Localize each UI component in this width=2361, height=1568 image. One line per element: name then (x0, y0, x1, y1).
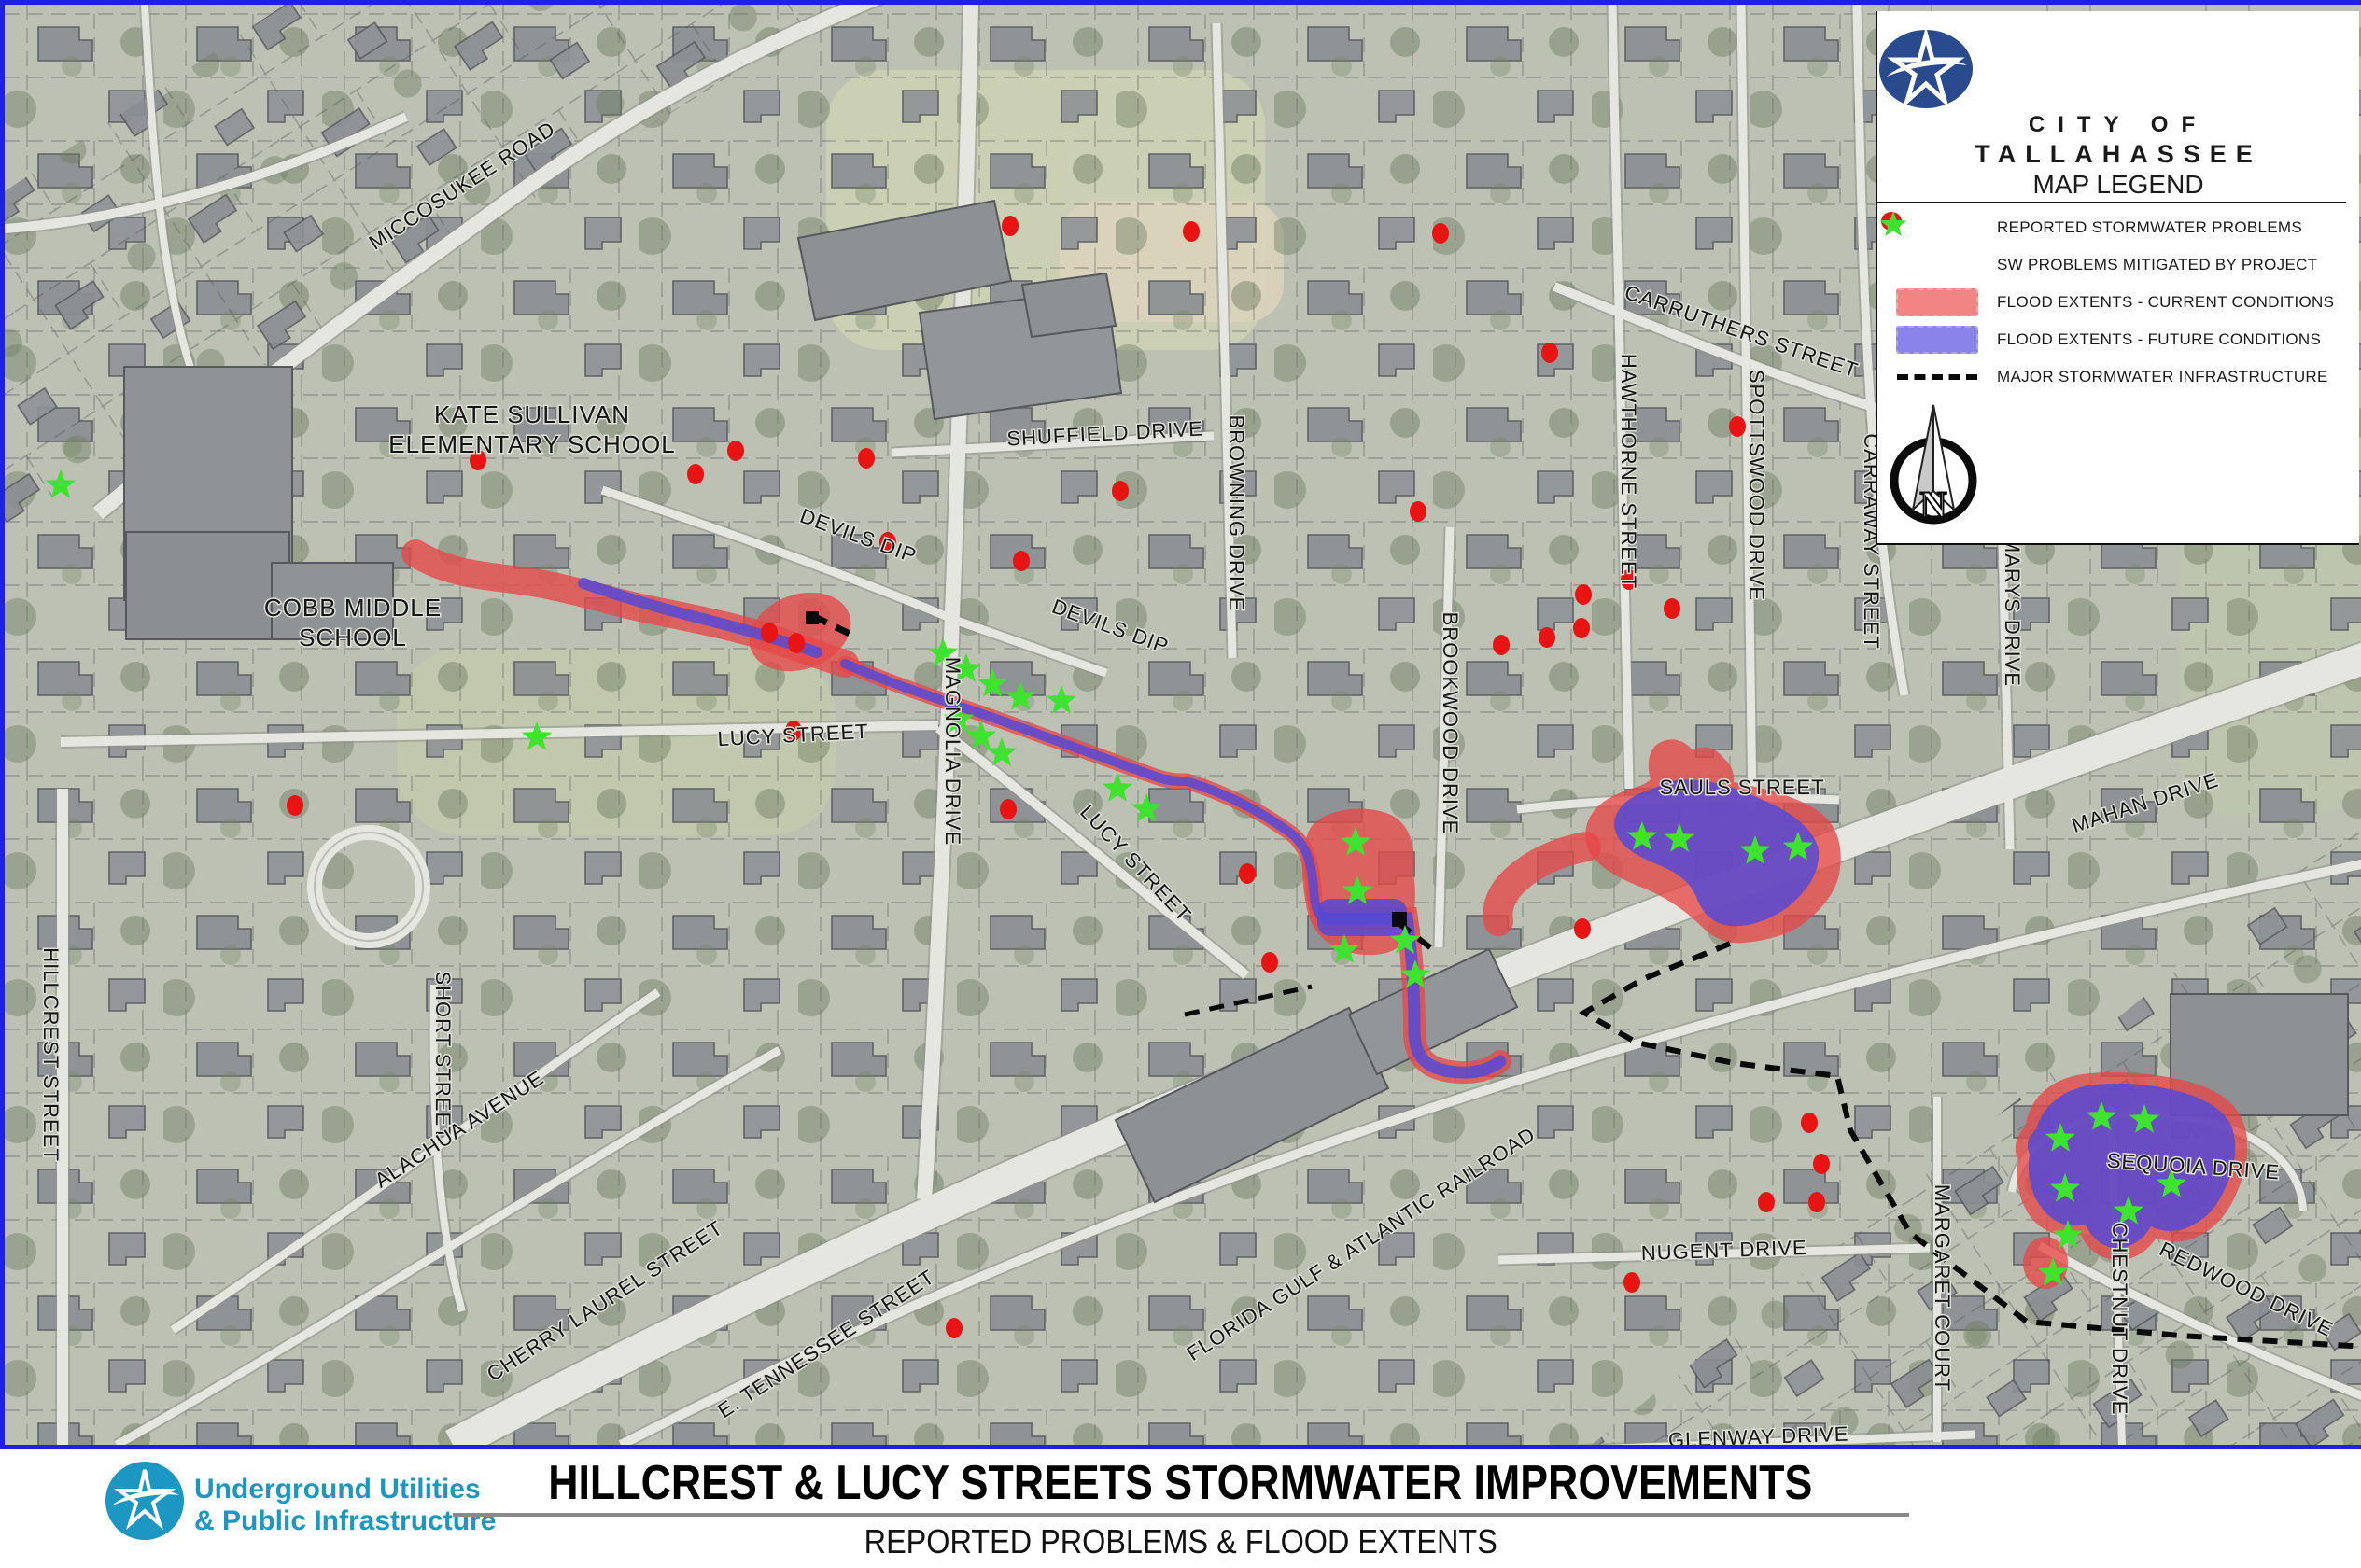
legend-item: SW PROBLEMS MITIGATED BY PROJECT (1877, 246, 2354, 284)
problem-dot[interactable] (1623, 1272, 1640, 1293)
title-underline (453, 1513, 1909, 1517)
legend-item: FLOOD EXTENTS - CURRENT CONDITIONS (1877, 284, 2354, 321)
legend-flood-current-swatch (1877, 288, 1997, 316)
legend-org-line1: CITY OF (1877, 112, 2359, 138)
sheet-title-block: HILLCREST & LUCY STREETS STORMWATER IMPR… (0, 1455, 2361, 1561)
problem-dot[interactable] (687, 464, 704, 484)
svg-text:N: N (1920, 483, 1947, 525)
place-label: KATE SULLIVAN (434, 400, 630, 428)
legend-title: MAP LEGEND (1877, 170, 2359, 200)
problem-dot[interactable] (788, 633, 805, 653)
legend-org-line2: TALLAHASSEE (1877, 140, 2359, 169)
legend-item-label: SW PROBLEMS MITIGATED BY PROJECT (1997, 256, 2317, 274)
problem-dot[interactable] (1410, 501, 1426, 522)
legend-item: FLOOD EXTENTS - FUTURE CONDITIONS (1877, 321, 2354, 358)
problem-dot[interactable] (1573, 618, 1590, 638)
map-title: HILLCREST & LUCY STREETS STORMWATER IMPR… (548, 1455, 1812, 1511)
street-label: SHORT STREET (431, 971, 455, 1140)
street-label: SPOTTSWOOD DRIVE (1745, 370, 1768, 601)
problem-dot[interactable] (1664, 598, 1680, 619)
map-area[interactable]: MICCOSUKEE ROADSHUFFIELD DRIVEBROWNING D… (0, 0, 2361, 1449)
street-label: MARGARET COURT (1931, 1184, 1954, 1392)
street-label: HILLCREST STREET (39, 947, 63, 1162)
legend-item-label: REPORTED STORMWATER PROBLEMS (1997, 218, 2302, 237)
street-label: MARYS DRIVE (2001, 536, 2024, 687)
problem-dot[interactable] (1574, 918, 1591, 939)
problem-dot[interactable] (858, 448, 875, 469)
problem-dot[interactable] (1758, 1192, 1775, 1212)
street-label: CHESTNUT DRIVE (2108, 1223, 2131, 1416)
problem-dot[interactable] (1002, 216, 1019, 236)
legend-item: REPORTED STORMWATER PROBLEMS (1877, 209, 2354, 246)
problem-dot[interactable] (1000, 799, 1017, 819)
map-sheet: { "legend": { "org_line1": "CITY OF", "o… (0, 0, 2361, 1568)
problem-dot[interactable] (1112, 481, 1129, 501)
place-label: COBB MIDDLE (264, 594, 442, 622)
legend-flood-future-swatch (1877, 326, 1997, 354)
problem-dot[interactable] (1729, 416, 1746, 437)
problem-dot[interactable] (1575, 584, 1592, 605)
map-subtitle: REPORTED PROBLEMS & FLOOD EXTENTS (864, 1522, 1497, 1561)
street-label: SAULS STREET (1659, 776, 1824, 799)
legend-item-label: FLOOD EXTENTS - CURRENT CONDITIONS (1997, 293, 2334, 312)
street-label: BROWNING DRIVE (1225, 415, 1248, 612)
legend-divider (1877, 202, 2346, 203)
problem-dot[interactable] (1013, 551, 1030, 571)
legend-dash-icon (1877, 374, 1997, 380)
problem-dot[interactable] (761, 623, 778, 643)
problem-dot[interactable] (1541, 343, 1558, 363)
street-label: MAGNOLIA DRIVE (941, 657, 964, 846)
problem-dot[interactable] (1261, 952, 1278, 973)
legend-item: MAJOR STORMWATER INFRASTRUCTURE (1877, 358, 2354, 396)
street-label: HAWTHORNE STREET (1617, 354, 1640, 589)
problem-dot[interactable] (946, 1318, 963, 1338)
problem-dot[interactable] (1808, 1192, 1825, 1212)
legend-panel: CITY OF TALLAHASSEE MAP LEGEND REPORTED … (1876, 11, 2359, 545)
problem-dot[interactable] (1539, 627, 1555, 648)
problem-dot[interactable] (1183, 221, 1200, 242)
legend-item-label: MAJOR STORMWATER INFRASTRUCTURE (1997, 368, 2328, 386)
problem-dot[interactable] (1813, 1154, 1830, 1174)
street-label: BROOKWOOD DRIVE (1439, 612, 1462, 835)
place-label: SCHOOL (299, 623, 407, 651)
problem-dot[interactable] (287, 795, 303, 816)
problem-dot[interactable] (1432, 223, 1449, 244)
problem-dot[interactable] (727, 441, 744, 461)
legend-item-label: FLOOD EXTENTS - FUTURE CONDITIONS (1997, 330, 2321, 349)
title-bar: Underground Utilities & Public Infrastru… (0, 1449, 2361, 1568)
legend-items: REPORTED STORMWATER PROBLEMSSW PROBLEMS … (1877, 209, 2354, 396)
problem-dot[interactable] (1801, 1113, 1818, 1133)
problem-dot[interactable] (1493, 635, 1510, 655)
problem-dot[interactable] (1239, 863, 1256, 884)
place-label: ELEMENTARY SCHOOL (388, 430, 675, 458)
